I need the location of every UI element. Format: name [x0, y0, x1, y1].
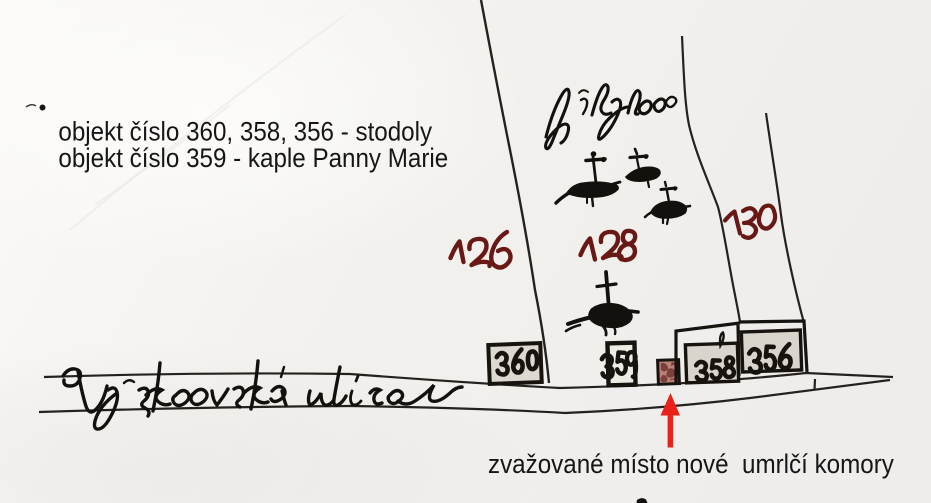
svg-text:zvažované místo nové umrlčí k: zvažované místo nové umrlčí komory: [488, 450, 894, 479]
svg-text:objekt číslo 359 - kaple Panny: objekt číslo 359 - kaple Panny Marie: [58, 144, 448, 173]
svg-text:objekt číslo 360, 358, 356 - s: objekt číslo 360, 358, 356 - stodoly: [58, 118, 432, 147]
